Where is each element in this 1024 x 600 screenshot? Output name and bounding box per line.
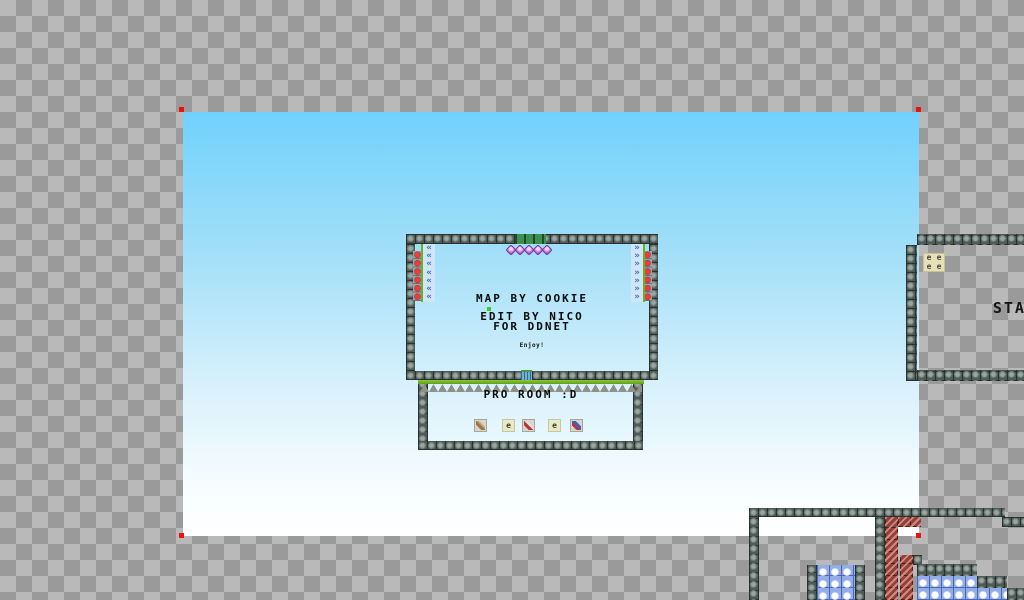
stage-label: STAGE xyxy=(938,299,1024,317)
gem-icon xyxy=(541,244,552,255)
selection-corner-marker-top-left[interactable] xyxy=(179,107,184,112)
map-note: Enjoy! xyxy=(406,342,658,349)
grenade-pickup-icon xyxy=(570,419,583,432)
selection-corner-marker-bottom-left[interactable] xyxy=(179,533,184,538)
ammo-pickup-icon: e xyxy=(548,419,561,432)
bottom-wall-top-row xyxy=(749,508,1005,517)
stage-room-wall-top xyxy=(917,234,1024,245)
selection-corner-marker-bottom-right[interactable] xyxy=(916,533,921,538)
stair-wall-row-3 xyxy=(1007,588,1024,600)
freeze-tiles-block xyxy=(817,565,855,600)
stair-wall-row-2 xyxy=(977,576,1007,588)
selection-corner-marker-top-right[interactable] xyxy=(916,107,921,112)
ammo-pickup-icon: e xyxy=(502,419,515,432)
ammo-letter: e xyxy=(924,263,934,272)
hammer-icon xyxy=(476,421,485,430)
green-tiles xyxy=(515,234,546,244)
stage-room-wall-left xyxy=(906,245,917,381)
green-cursor-pixel xyxy=(487,307,491,311)
bottom-wall-left-column xyxy=(749,517,759,600)
hammer-pickup-icon xyxy=(474,419,487,432)
stair-wall-row-1 xyxy=(917,564,977,576)
freeze-block-wall-left xyxy=(807,565,817,600)
gem-pickup-row xyxy=(507,245,557,256)
kill-tiles-row xyxy=(898,517,921,527)
stage-room-wall-bottom xyxy=(917,370,1024,381)
map-title-line3: FOR DDNET xyxy=(406,320,658,333)
pistol-icon xyxy=(524,421,533,430)
main-room-wall-bottom xyxy=(406,371,658,380)
bottom-wall-mid-column xyxy=(875,517,885,600)
map-editor-canvas[interactable]: MAP BY COOKIE EDIT BY NICO FOR DDNET Enj… xyxy=(0,0,1024,600)
bottom-wall-right-tiles xyxy=(1002,517,1024,527)
ammo-tile-block: e e e e xyxy=(923,253,945,272)
stair-freeze-row-3 xyxy=(917,588,1007,600)
pro-room-label: PRO ROOM :D xyxy=(418,388,644,401)
grenade-icon xyxy=(572,421,581,430)
teleporter-tile xyxy=(521,370,532,380)
kill-tiles-column-a xyxy=(885,517,898,600)
map-title-line1: MAP BY COOKIE xyxy=(406,292,658,305)
kill-tiles-column-b xyxy=(900,555,913,600)
pro-room-wall-bottom xyxy=(418,441,643,450)
ammo-letter: e xyxy=(934,263,944,272)
pistol-pickup-icon xyxy=(522,419,535,432)
stair-freeze-row-2 xyxy=(917,576,977,588)
freeze-block-wall-right xyxy=(855,565,865,600)
